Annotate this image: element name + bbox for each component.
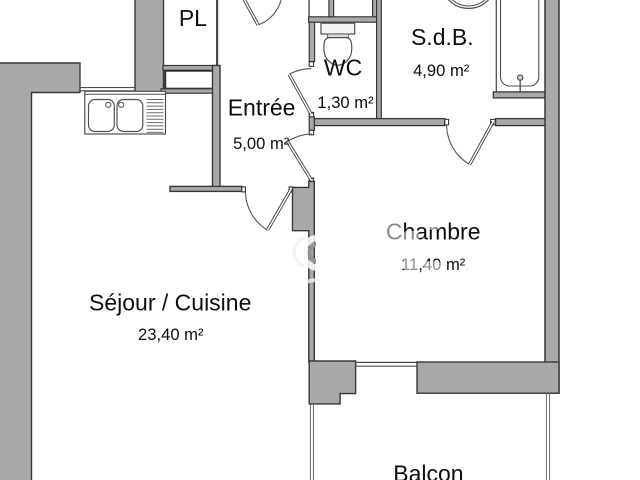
svg-text:S.d.B.: S.d.B. bbox=[411, 24, 474, 50]
svg-text:Séjour / Cuisine: Séjour / Cuisine bbox=[89, 289, 251, 315]
svg-text:4,90 m²: 4,90 m² bbox=[413, 61, 470, 80]
svg-text:1,30 m²: 1,30 m² bbox=[317, 93, 374, 112]
svg-text:23,40 m²: 23,40 m² bbox=[138, 325, 204, 344]
svg-text:Entrée: Entrée bbox=[228, 94, 296, 120]
svg-text:Balcon: Balcon bbox=[393, 461, 463, 480]
svg-text:PL: PL bbox=[179, 5, 207, 31]
svg-text:5,00 m²: 5,00 m² bbox=[233, 134, 290, 153]
svg-text:WC: WC bbox=[324, 55, 362, 81]
